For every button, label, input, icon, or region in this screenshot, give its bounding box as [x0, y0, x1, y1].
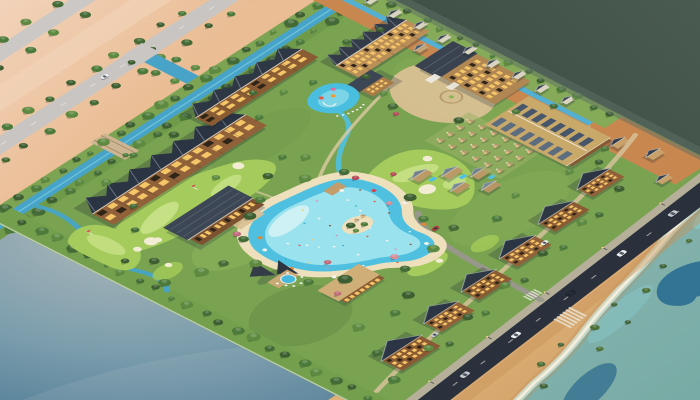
scene-canvas: [0, 0, 700, 400]
resort-aerial-render: [0, 0, 700, 400]
masterplan-group: [0, 0, 700, 400]
